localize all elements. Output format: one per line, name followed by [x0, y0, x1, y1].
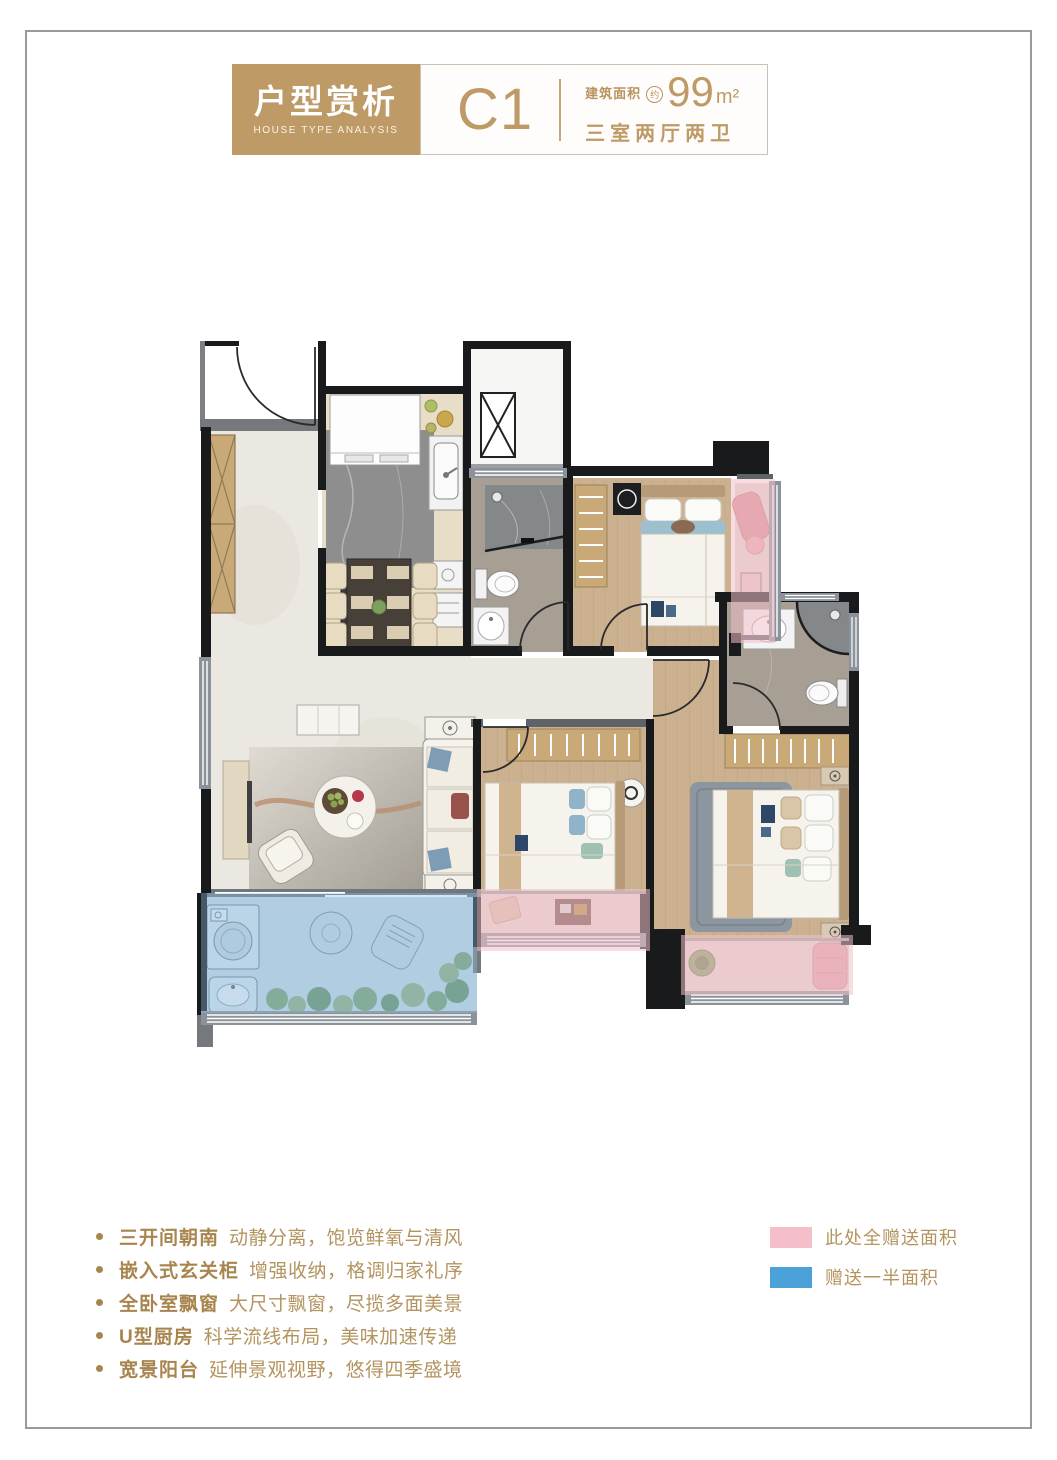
legend-item-gift-half: 赠送一半面积: [770, 1266, 958, 1288]
dining-area: [323, 559, 437, 655]
legend-item-gift-full: 此处全赠送面积: [770, 1226, 958, 1248]
entry-closet: [209, 435, 235, 613]
bullet-icon: [96, 1365, 103, 1372]
legend: 此处全赠送面积 赠送一半面积: [770, 1226, 958, 1306]
unit-label: C1: [457, 76, 533, 143]
gift-full-area-north: [731, 479, 775, 643]
wardrobe-icon: [725, 734, 851, 768]
feature-item: 宽景阳台 延伸景观视野，悠得四季盛境: [96, 1356, 464, 1381]
feature-item: 嵌入式玄关柜 增强收纳，格调归家礼序: [96, 1257, 464, 1282]
page-title: 户型赏析: [254, 84, 398, 120]
wardrobe-icon: [575, 485, 607, 587]
ac-unit-icon: [613, 483, 641, 515]
bedroom-secondary-south: [485, 729, 645, 891]
toilet-icon: [475, 569, 519, 599]
bullet-icon: [96, 1332, 103, 1339]
feature-item: U型厨房 科学流线布局，美味加速传递: [96, 1323, 464, 1348]
tv-icon: [247, 781, 252, 843]
area-unit: m²: [716, 86, 739, 111]
area-value: 99: [667, 73, 714, 111]
gift-full-area-south: [477, 889, 650, 951]
feature-item: 三开间朝南 动静分离，饱览鲜氧与清风: [96, 1224, 464, 1249]
utility-shaft: [481, 393, 515, 457]
bullet-icon: [96, 1233, 103, 1240]
header-title-box: 户型赏析 HOUSE TYPE ANALYSIS: [232, 64, 420, 155]
bullet-icon: [96, 1266, 103, 1273]
toilet-icon: [806, 679, 847, 707]
floor-plan: [185, 335, 915, 1055]
page-subtitle: HOUSE TYPE ANALYSIS: [253, 125, 398, 136]
area-block: 建筑面积 约 99 m² 三室两厅两卫: [585, 73, 739, 146]
gift-half-area-balcony: [201, 893, 477, 1013]
entry-door-icon: [237, 347, 315, 425]
sink-icon: [473, 607, 509, 645]
gift-full-area-master: [681, 935, 853, 995]
bed-icon: [485, 781, 625, 891]
feature-list: 三开间朝南 动静分离，饱览鲜氧与清风 嵌入式玄关柜 增强收纳，格调归家礼序 全卧…: [96, 1224, 464, 1389]
pink-swatch-icon: [770, 1227, 812, 1248]
coffee-table-icon: [314, 776, 376, 838]
sofa-icon: [423, 739, 477, 877]
page: 户型赏析 HOUSE TYPE ANALYSIS C1 建筑面积 约 99 m²…: [0, 0, 1057, 1460]
header-divider: [559, 79, 561, 141]
area-prefix: 建筑面积: [585, 83, 641, 111]
blue-swatch-icon: [770, 1267, 812, 1288]
tv-cabinet-icon: [223, 761, 249, 859]
header-unit-box: C1 建筑面积 约 99 m² 三室两厅两卫: [420, 64, 768, 155]
feature-item: 全卧室飘窗 大尺寸飘窗，尽揽多面美景: [96, 1290, 464, 1315]
bed-icon: [713, 788, 849, 920]
approx-circle-icon: 约: [646, 86, 663, 103]
bullet-icon: [96, 1299, 103, 1306]
layout-summary: 三室两厅两卫: [585, 117, 739, 146]
